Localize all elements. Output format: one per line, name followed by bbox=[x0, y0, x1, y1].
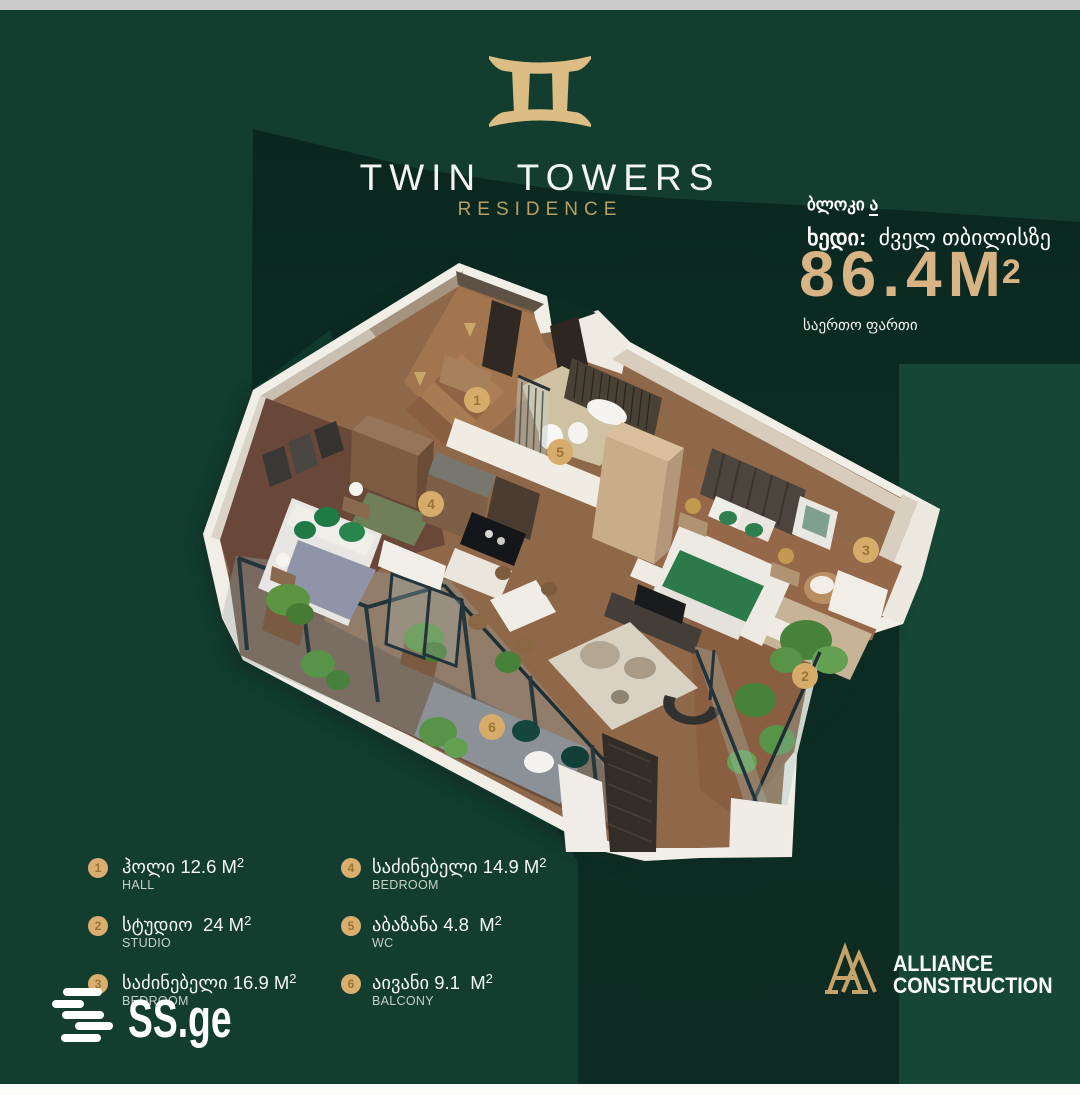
svg-text:6: 6 bbox=[488, 719, 496, 735]
svg-text:3: 3 bbox=[862, 542, 870, 558]
svg-text:2: 2 bbox=[801, 668, 809, 684]
svg-text:5: 5 bbox=[556, 444, 564, 460]
svg-text:1: 1 bbox=[473, 392, 481, 408]
svg-text:4: 4 bbox=[427, 496, 435, 512]
